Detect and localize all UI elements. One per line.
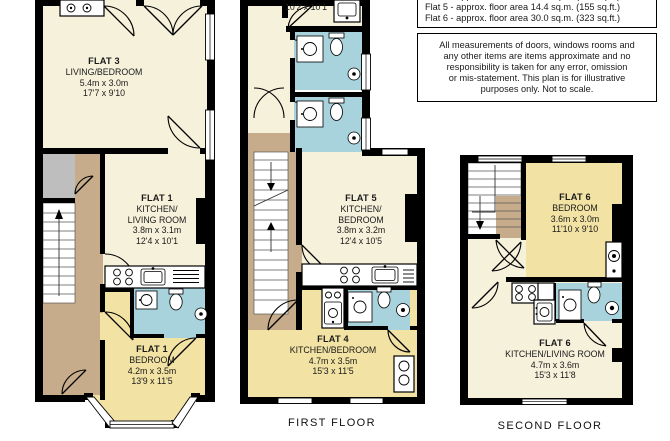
flat-name: FLAT 6 xyxy=(474,338,636,349)
hallway-lower xyxy=(43,303,100,395)
stove-icon xyxy=(60,0,104,16)
sink-icon xyxy=(297,36,323,62)
flat4-kitchen-unit xyxy=(322,288,344,328)
toilet-icon xyxy=(588,282,601,287)
closet xyxy=(43,152,75,200)
imperial-dims: 12'4 x 10'1 xyxy=(108,236,206,247)
sink-icon xyxy=(136,291,157,309)
toilet-icon xyxy=(169,289,183,310)
floorplan-canvas: FLAT 3 LIVING/BEDROOM 5.4m x 3.0m 17'7 x… xyxy=(0,0,670,441)
room-label-flat6-living: FLAT 6 KITCHEN/LIVING ROOM 4.7m x 3.6m 1… xyxy=(474,338,636,381)
sink-icon xyxy=(348,292,372,322)
flat-name: FLAT 3 xyxy=(45,56,163,67)
room-label-flat5: FLAT 5 KITCHEN/ BEDROOM 3.8m x 3.2m 12'4… xyxy=(310,193,412,247)
counter xyxy=(538,283,554,300)
room-label-partial: 10'2 x 10'1 xyxy=(268,2,344,13)
sink-icon xyxy=(559,290,581,320)
hallway-patch xyxy=(496,196,522,238)
toilet-icon xyxy=(377,287,391,292)
kitchen-counter xyxy=(105,266,205,288)
room-type: LIVING ROOM xyxy=(108,215,206,226)
flat-name: FLAT 4 xyxy=(258,334,408,345)
metric-dims: 5.4m x 3.0m xyxy=(45,78,163,89)
metric-dims: 4.2m x 3.5m xyxy=(102,366,202,377)
room-type: LIVING/BEDROOM xyxy=(45,67,163,78)
disclaimer-box: All measurements of doors, windows rooms… xyxy=(417,33,657,102)
imperial-dims: 11'10 x 9'10 xyxy=(524,224,626,235)
room-type: BEDROOM xyxy=(524,203,626,214)
hallway xyxy=(75,148,103,313)
kitchen-counter xyxy=(302,264,417,286)
room-type: BEDROOM xyxy=(102,355,202,366)
room-type: KITCHEN/LIVING ROOM xyxy=(474,349,636,360)
disclaimer-line: All measurements of doors, windows rooms… xyxy=(422,40,652,51)
flat-name: FLAT 1 xyxy=(102,344,202,355)
metric-dims: 3.8m x 3.1m xyxy=(108,225,206,236)
corner-basin-icon xyxy=(195,308,207,320)
room-label-flat6-bedroom: FLAT 6 BEDROOM 3.6m x 3.0m 11'10 x 9'10 xyxy=(524,192,626,235)
toilet-icon xyxy=(329,33,344,38)
disclaimer-line: purposes only. Not to scale. xyxy=(422,84,652,95)
metric-dims: 4.7m x 3.5m xyxy=(258,356,408,367)
sink-icon xyxy=(297,101,323,127)
area-line-flat6: Flat 6 - approx. floor area 30.0 sq.m. (… xyxy=(425,13,649,24)
sink-icon xyxy=(141,267,165,285)
landing xyxy=(248,0,294,152)
sink-icon xyxy=(325,302,342,324)
sink-unit-icon xyxy=(534,300,555,324)
room-type: KITCHEN/ xyxy=(108,204,206,215)
room-label-flat1-kitchen: FLAT 1 KITCHEN/ LIVING ROOM 3.8m x 3.1m … xyxy=(108,193,206,247)
flat-name: FLAT 6 xyxy=(524,192,626,203)
toilet-icon xyxy=(329,98,344,103)
first-floor-label: FIRST FLOOR xyxy=(252,417,412,429)
flat-name: FLAT 1 xyxy=(108,193,206,204)
metric-dims: 3.6m x 3.0m xyxy=(524,214,626,225)
imperial-dims: 15'3 x 11'8 xyxy=(474,370,636,381)
room-type: KITCHEN/ xyxy=(310,204,412,215)
room-type: BEDROOM xyxy=(310,215,412,226)
room-type: KITCHEN/BEDROOM xyxy=(258,345,408,356)
imperial-dims: 15'3 x 11'5 xyxy=(258,366,408,377)
floor-area-box: Flat 4 - approx. floor area 16.4 sq.m. (… xyxy=(417,0,657,28)
imperial-dims: 12'4 x 10'5 xyxy=(310,236,412,247)
imperial-dims: 17'7 x 9'10 xyxy=(45,88,163,99)
metric-dims: 3.8m x 3.2m xyxy=(310,225,412,236)
flat-name: FLAT 5 xyxy=(310,193,412,204)
imperial-dims: 13'9 x 11'5 xyxy=(102,376,202,387)
room-label-flat1-bedroom: FLAT 1 BEDROOM 4.2m x 3.5m 13'9 x 11'5 xyxy=(102,344,202,387)
shower-icon xyxy=(606,242,622,278)
imperial-dims: 10'2 x 10'1 xyxy=(268,2,344,13)
second-floor-label: SECOND FLOOR xyxy=(470,420,630,432)
disclaimer-line: responsibility is taken for any error, o… xyxy=(422,62,652,73)
area-line-flat5: Flat 5 - approx. floor area 14.4 sq.m. (… xyxy=(425,2,649,13)
room-label-flat3: FLAT 3 LIVING/BEDROOM 5.4m x 3.0m 17'7 x… xyxy=(45,56,163,99)
metric-dims: 4.7m x 3.6m xyxy=(474,360,636,371)
disclaimer-line: any other items are items approximate an… xyxy=(422,51,652,62)
disclaimer-line: or mis-statement. This plan is for illus… xyxy=(422,73,652,84)
room-label-flat4: FLAT 4 KITCHEN/BEDROOM 4.7m x 3.5m 15'3 … xyxy=(258,334,408,377)
